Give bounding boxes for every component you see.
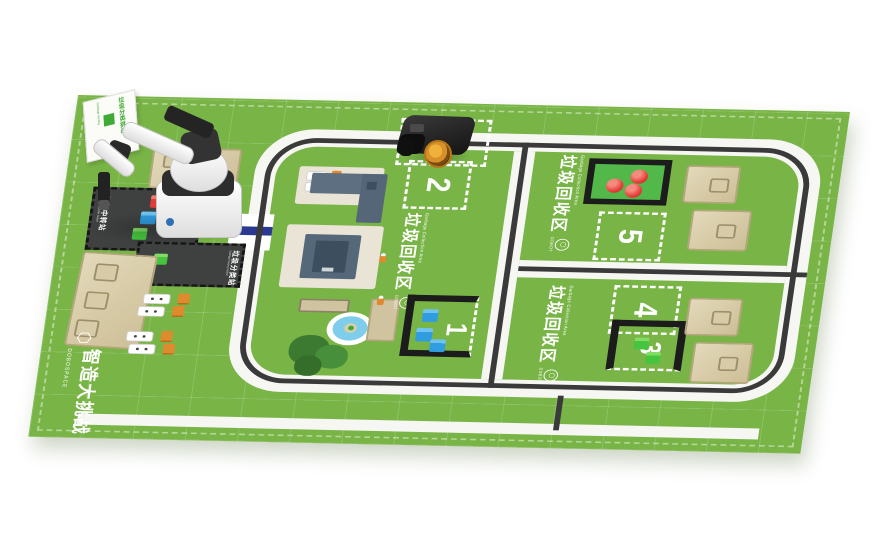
- robot-arm: [68, 100, 248, 250]
- arm-logo-dot: [166, 218, 174, 226]
- dobot-logo-icon: ⬡: [554, 239, 570, 251]
- red-garbage-tray: [583, 158, 673, 205]
- cube-green: [645, 352, 661, 364]
- worker-figure: [172, 306, 185, 317]
- car-wheel-front: [424, 140, 452, 168]
- recycle-bin: [143, 294, 172, 305]
- robot-car: [396, 110, 480, 170]
- sphere-red: [605, 178, 624, 193]
- recycle-bin: [127, 344, 156, 355]
- dobot-logo-icon: ⬡: [543, 369, 559, 381]
- zone-1-corral: 1: [399, 295, 479, 358]
- road-bottom-strip: [77, 413, 760, 439]
- cube-blue: [429, 339, 446, 352]
- building-door: [321, 267, 333, 271]
- ramp-block: [684, 298, 744, 337]
- building-tower: [299, 234, 361, 279]
- pedestrian-figure: [379, 253, 388, 264]
- sphere-red: [624, 184, 643, 199]
- ramp-slot: [709, 178, 730, 193]
- ramp-block: [682, 165, 742, 204]
- building-window: [366, 182, 377, 190]
- worker-figure: [162, 344, 175, 355]
- ramp-slot: [717, 357, 738, 372]
- ramp-block: [687, 209, 753, 251]
- platform-slot: [83, 291, 110, 310]
- car-wheel-rear: [398, 138, 414, 156]
- recycle-bin: [137, 306, 166, 317]
- ramp-block: [689, 342, 755, 384]
- zone-4-number: 4: [628, 302, 663, 318]
- zone-1-number: 1: [441, 323, 472, 337]
- ramp-slot: [711, 311, 732, 326]
- branding-subtitle: DOBOSPACE: [61, 348, 73, 388]
- arm-gripper-tip: [99, 200, 109, 210]
- recycle-bin: [125, 331, 154, 342]
- scene: 垃圾中转站 Garbage Transfer Station 垃圾分类站 Gar…: [0, 0, 874, 558]
- zone-3-corral: 3: [605, 320, 688, 372]
- zone-5-number: 5: [612, 229, 647, 245]
- car-sensor: [410, 124, 424, 132]
- ramp-slot: [715, 224, 736, 239]
- worker-figure: [177, 293, 190, 304]
- zone-5-box: 5: [592, 211, 667, 261]
- bench: [298, 299, 350, 313]
- branding-block: ⬡ 智造大挑战 DOBOSPACE: [52, 331, 108, 411]
- cube-green: [633, 337, 649, 349]
- dobot-logo-icon: ⬡: [75, 331, 94, 344]
- worker-figure: [160, 331, 173, 342]
- platform-slot: [93, 263, 120, 282]
- arm-gripper: [98, 172, 110, 202]
- sphere-red: [630, 169, 649, 184]
- cube-blue: [422, 309, 439, 322]
- zone-2-number: 2: [420, 177, 455, 193]
